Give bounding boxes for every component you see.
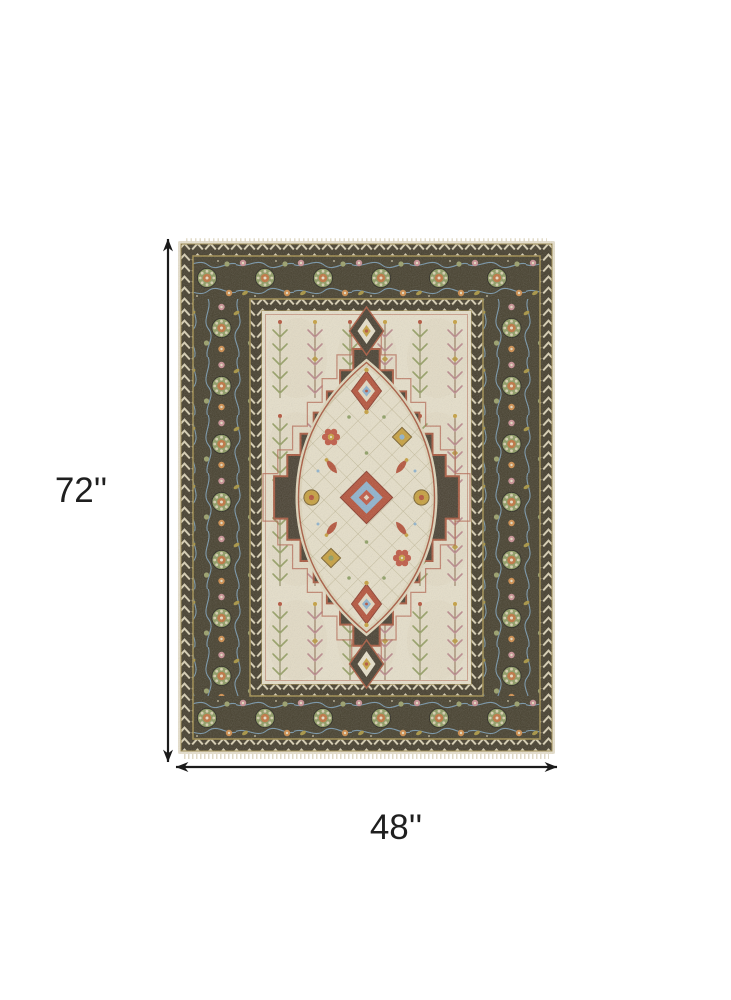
height-dimension-label: 72'': [26, 472, 136, 509]
width-dimension-label: 48'': [341, 809, 451, 846]
product-image-canvas: 72'' 48'': [0, 0, 731, 1000]
rug-image: [178, 237, 555, 762]
